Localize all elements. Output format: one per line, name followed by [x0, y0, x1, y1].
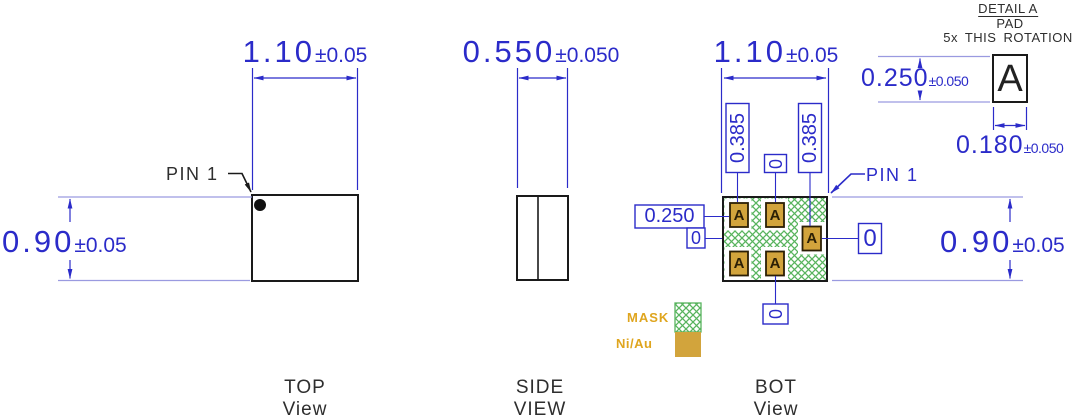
- pad-letter: A: [766, 203, 784, 227]
- legend-mask-label: MASK: [627, 311, 669, 324]
- bot-view-subtitle: View: [716, 400, 836, 419]
- pin1-dot: [254, 199, 266, 211]
- dimension-value: 1.10: [714, 36, 786, 67]
- top-view-width-dimension: 1.10±0.05: [243, 36, 368, 67]
- bot-view-col3-dimension: 0.385: [800, 113, 820, 163]
- side-view-width-dimension: 0.550±0.050: [463, 36, 620, 67]
- detail-width-dimension: 0.180±0.050: [956, 133, 1063, 158]
- dimension-value: 0.550: [463, 36, 556, 67]
- top-view-pin1-leader: [228, 174, 251, 193]
- bot-view-col2-dimension: 0: [767, 158, 785, 168]
- detail-subtitle: PAD: [996, 17, 1023, 30]
- dimension-tolerance: ±0.050: [929, 74, 969, 88]
- bot-view-left-zero-dimension: 0: [687, 228, 705, 248]
- niau-swatch: [675, 332, 701, 357]
- detail-note: 5x THIS ROTATION: [943, 31, 1073, 44]
- detail-a-width-dimension-lines: [994, 107, 1027, 130]
- bot-view-title: BOT: [716, 378, 836, 397]
- dimension-value: 0.90: [940, 226, 1012, 257]
- top-view-subtitle: View: [245, 400, 365, 419]
- dimension-tolerance: ±0.05: [74, 235, 126, 256]
- legend-niau-label: Ni/Au: [616, 337, 652, 350]
- pad-letter: A: [730, 252, 748, 276]
- side-view-subtitle: VIEW: [480, 400, 600, 419]
- side-view-width-dimension-lines: [518, 68, 568, 188]
- dimension-tolerance: ±0.050: [1024, 141, 1064, 155]
- pin1-label-bot-view: PIN 1: [866, 166, 919, 184]
- detail-pad-letter: A: [993, 55, 1027, 102]
- detail-title: DETAIL A: [978, 2, 1038, 17]
- dimension-tolerance: ±0.05: [315, 45, 367, 66]
- mask-swatch: [675, 303, 701, 332]
- bot-view-col1-dimension: 0.385: [728, 113, 748, 163]
- dimension-tolerance: ±0.050: [555, 45, 619, 66]
- bot-view-bottom-zero-dimension: 0: [767, 309, 785, 319]
- top-view-width-dimension-lines: [253, 68, 358, 190]
- dimension-value: 1.10: [243, 36, 315, 67]
- dimension-value: 0.180: [956, 133, 1024, 158]
- dimension-tolerance: ±0.05: [786, 45, 838, 66]
- pin1-label-top-view: PIN 1: [166, 165, 219, 183]
- bot-view-pin1-leader: [831, 174, 865, 193]
- top-view-height-dimension: 0.90±0.05: [2, 226, 127, 257]
- legend-swatches: [675, 303, 701, 357]
- pad-letter: A: [766, 252, 784, 276]
- bot-view-height-dimension: 0.90±0.05: [940, 226, 1065, 257]
- dimension-value: 0.90: [2, 226, 74, 257]
- bot-view-right-zero-dimension: 0: [859, 224, 882, 254]
- package-drawing: 1.10±0.05 0.90±0.05 PIN 1 TOP View 0.550…: [0, 0, 1080, 420]
- bot-view-width-dimension: 1.10±0.05: [714, 36, 839, 67]
- bot-view-pad-offset-dimension: 0.250: [635, 205, 704, 228]
- side-view-title: SIDE: [480, 378, 600, 397]
- detail-height-dimension: 0.250±0.050: [861, 66, 968, 91]
- pad-letter: A: [730, 203, 748, 227]
- top-view-body: [252, 195, 358, 281]
- pad-letter: A: [803, 227, 822, 251]
- dimension-value: 0.250: [861, 66, 929, 91]
- side-view-body: [517, 196, 568, 280]
- top-view-title: TOP: [245, 378, 365, 397]
- dimension-tolerance: ±0.05: [1012, 235, 1064, 256]
